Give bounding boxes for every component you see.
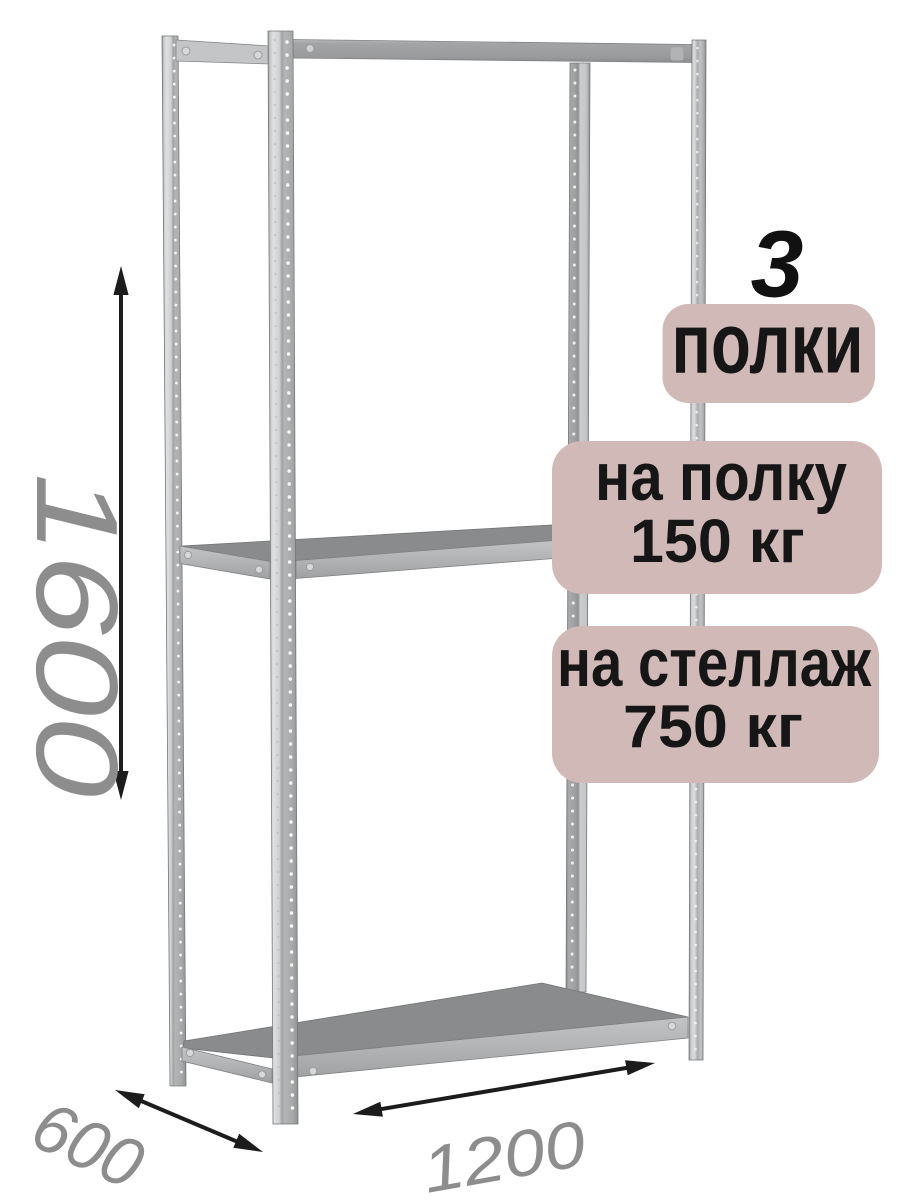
svg-text:полки: полки (672, 297, 864, 392)
svg-text:на полку: на полку (595, 439, 847, 515)
svg-text:1600: 1600 (12, 473, 142, 797)
svg-text:на стеллаж: на стеллаж (557, 625, 872, 701)
svg-text:750 кг: 750 кг (623, 693, 803, 760)
svg-text:150 кг: 150 кг (630, 507, 805, 575)
